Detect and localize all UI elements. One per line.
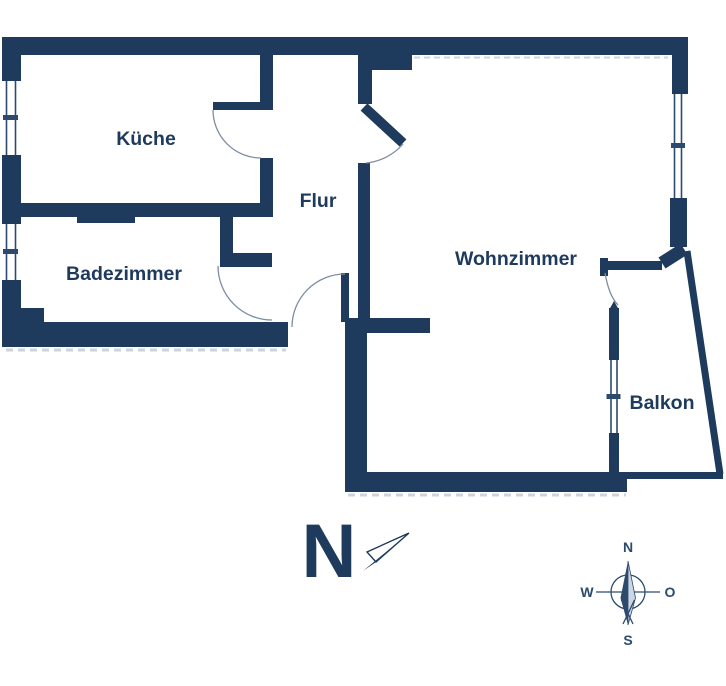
kueche-door-arc: [213, 110, 261, 158]
wall-balkon-slant: [687, 251, 720, 474]
wall-entrance-stub: [345, 318, 430, 333]
wall-kueche-bad-step: [77, 217, 135, 223]
balkon-door-arc: [605, 273, 618, 305]
compass-west-label: W: [580, 584, 594, 600]
door-arcs: [213, 110, 618, 327]
wall-kueche-flur-lower: [260, 158, 273, 204]
compass-north-label: N: [623, 539, 633, 555]
compass-east-label: O: [665, 584, 676, 600]
entrance-door-leaf: [341, 273, 349, 322]
bad-door-arc: [218, 266, 272, 320]
room-label-flur: Flur: [300, 190, 337, 212]
window-kueche-icon: [3, 81, 18, 155]
wall-bad-bottom: [2, 322, 288, 347]
window-balkon-icon: [607, 360, 621, 433]
entrance-door-arc: [292, 274, 345, 327]
room-label-balkon: Balkon: [629, 392, 694, 414]
wall-right-lower: [670, 198, 687, 247]
wall-top: [2, 37, 688, 55]
wall-left-upper: [2, 37, 21, 81]
north-letter: N: [302, 509, 357, 594]
wall-flur-wz-upper: [358, 70, 372, 104]
compass-icon: [596, 561, 660, 625]
wz-door-arc: [366, 144, 403, 163]
windows: [3, 81, 685, 433]
wall-right-upper: [672, 37, 688, 94]
wall-wz-left: [345, 333, 367, 492]
wall-balkon-left-lower: [609, 433, 619, 472]
wall-left-mid: [2, 155, 21, 224]
wall-kueche-flur-upper: [260, 48, 273, 102]
compass-south-label: S: [623, 632, 632, 648]
wz-door-leaf: [364, 107, 403, 143]
window-bad-icon: [3, 224, 18, 280]
floorplan-svg: Küche Flur Badezimmer Wohnzimmer Balkon …: [0, 0, 726, 686]
room-label-badezimmer: Badezimmer: [66, 263, 182, 285]
balkon-door-hinge: [600, 258, 608, 276]
floorplan-page: Küche Flur Badezimmer Wohnzimmer Balkon …: [0, 0, 726, 686]
wall-balkon-corner: [662, 249, 684, 263]
bad-door-leaf: [220, 253, 272, 267]
room-label-wohnzimmer: Wohnzimmer: [455, 248, 577, 270]
wall-flur-wz-lower: [358, 163, 370, 318]
north-arrow-icon: [363, 533, 409, 571]
wall-balkon-bottom: [617, 472, 723, 479]
wall-wz-bottom: [345, 472, 627, 492]
compass-rose: N W O S: [580, 539, 675, 648]
wall-bad-flur: [220, 217, 233, 253]
wall-kueche-bad: [21, 203, 273, 217]
wall-wz-corner-block: [358, 55, 412, 70]
kueche-door-leaf: [213, 102, 273, 110]
wall-balkon-door: [603, 261, 662, 270]
window-wohnzimmer-icon: [671, 94, 685, 198]
room-label-kueche: Küche: [116, 128, 176, 150]
north-indicator: N: [302, 509, 409, 594]
wall-balkon-left-upper: [609, 308, 619, 360]
